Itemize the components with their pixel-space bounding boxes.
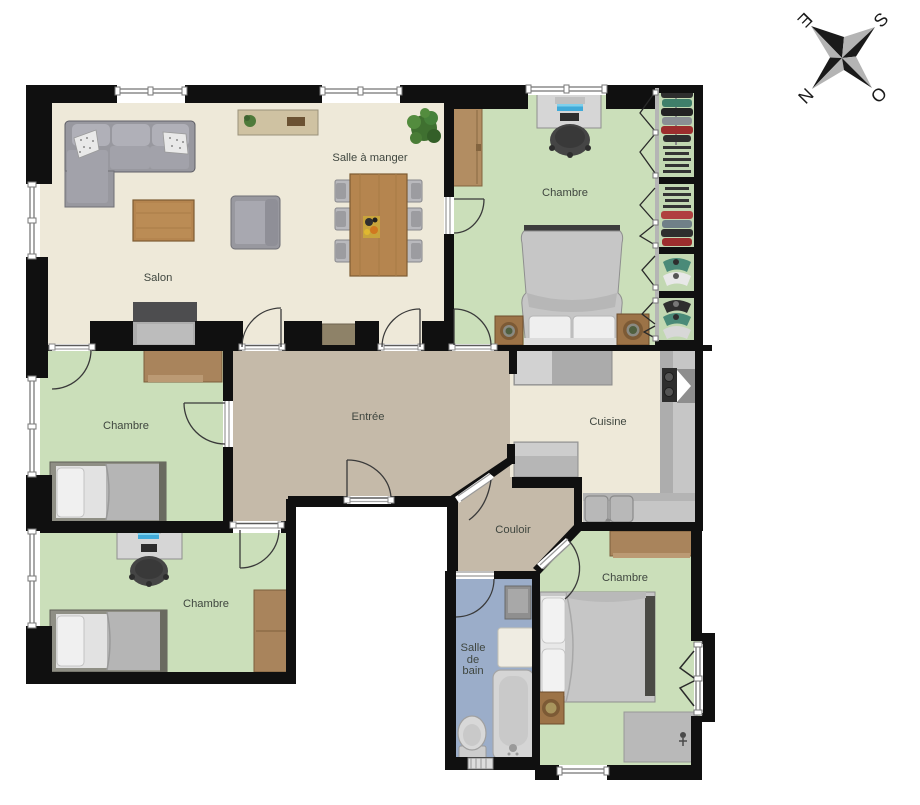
svg-text:Entrée: Entrée [352,411,385,423]
svg-text:Salle: Salle [461,642,486,654]
svg-text:Couloir: Couloir [495,524,531,536]
svg-text:Chambre: Chambre [103,420,149,432]
svg-text:Salle à manger: Salle à manger [332,152,408,164]
svg-text:bain: bain [462,665,483,677]
svg-text:Chambre: Chambre [542,187,588,199]
svg-text:Salon: Salon [144,272,173,284]
svg-text:Chambre: Chambre [183,598,229,610]
svg-text:Chambre: Chambre [602,572,648,584]
svg-text:N: N [794,84,817,107]
svg-text:Cuisine: Cuisine [589,416,626,428]
